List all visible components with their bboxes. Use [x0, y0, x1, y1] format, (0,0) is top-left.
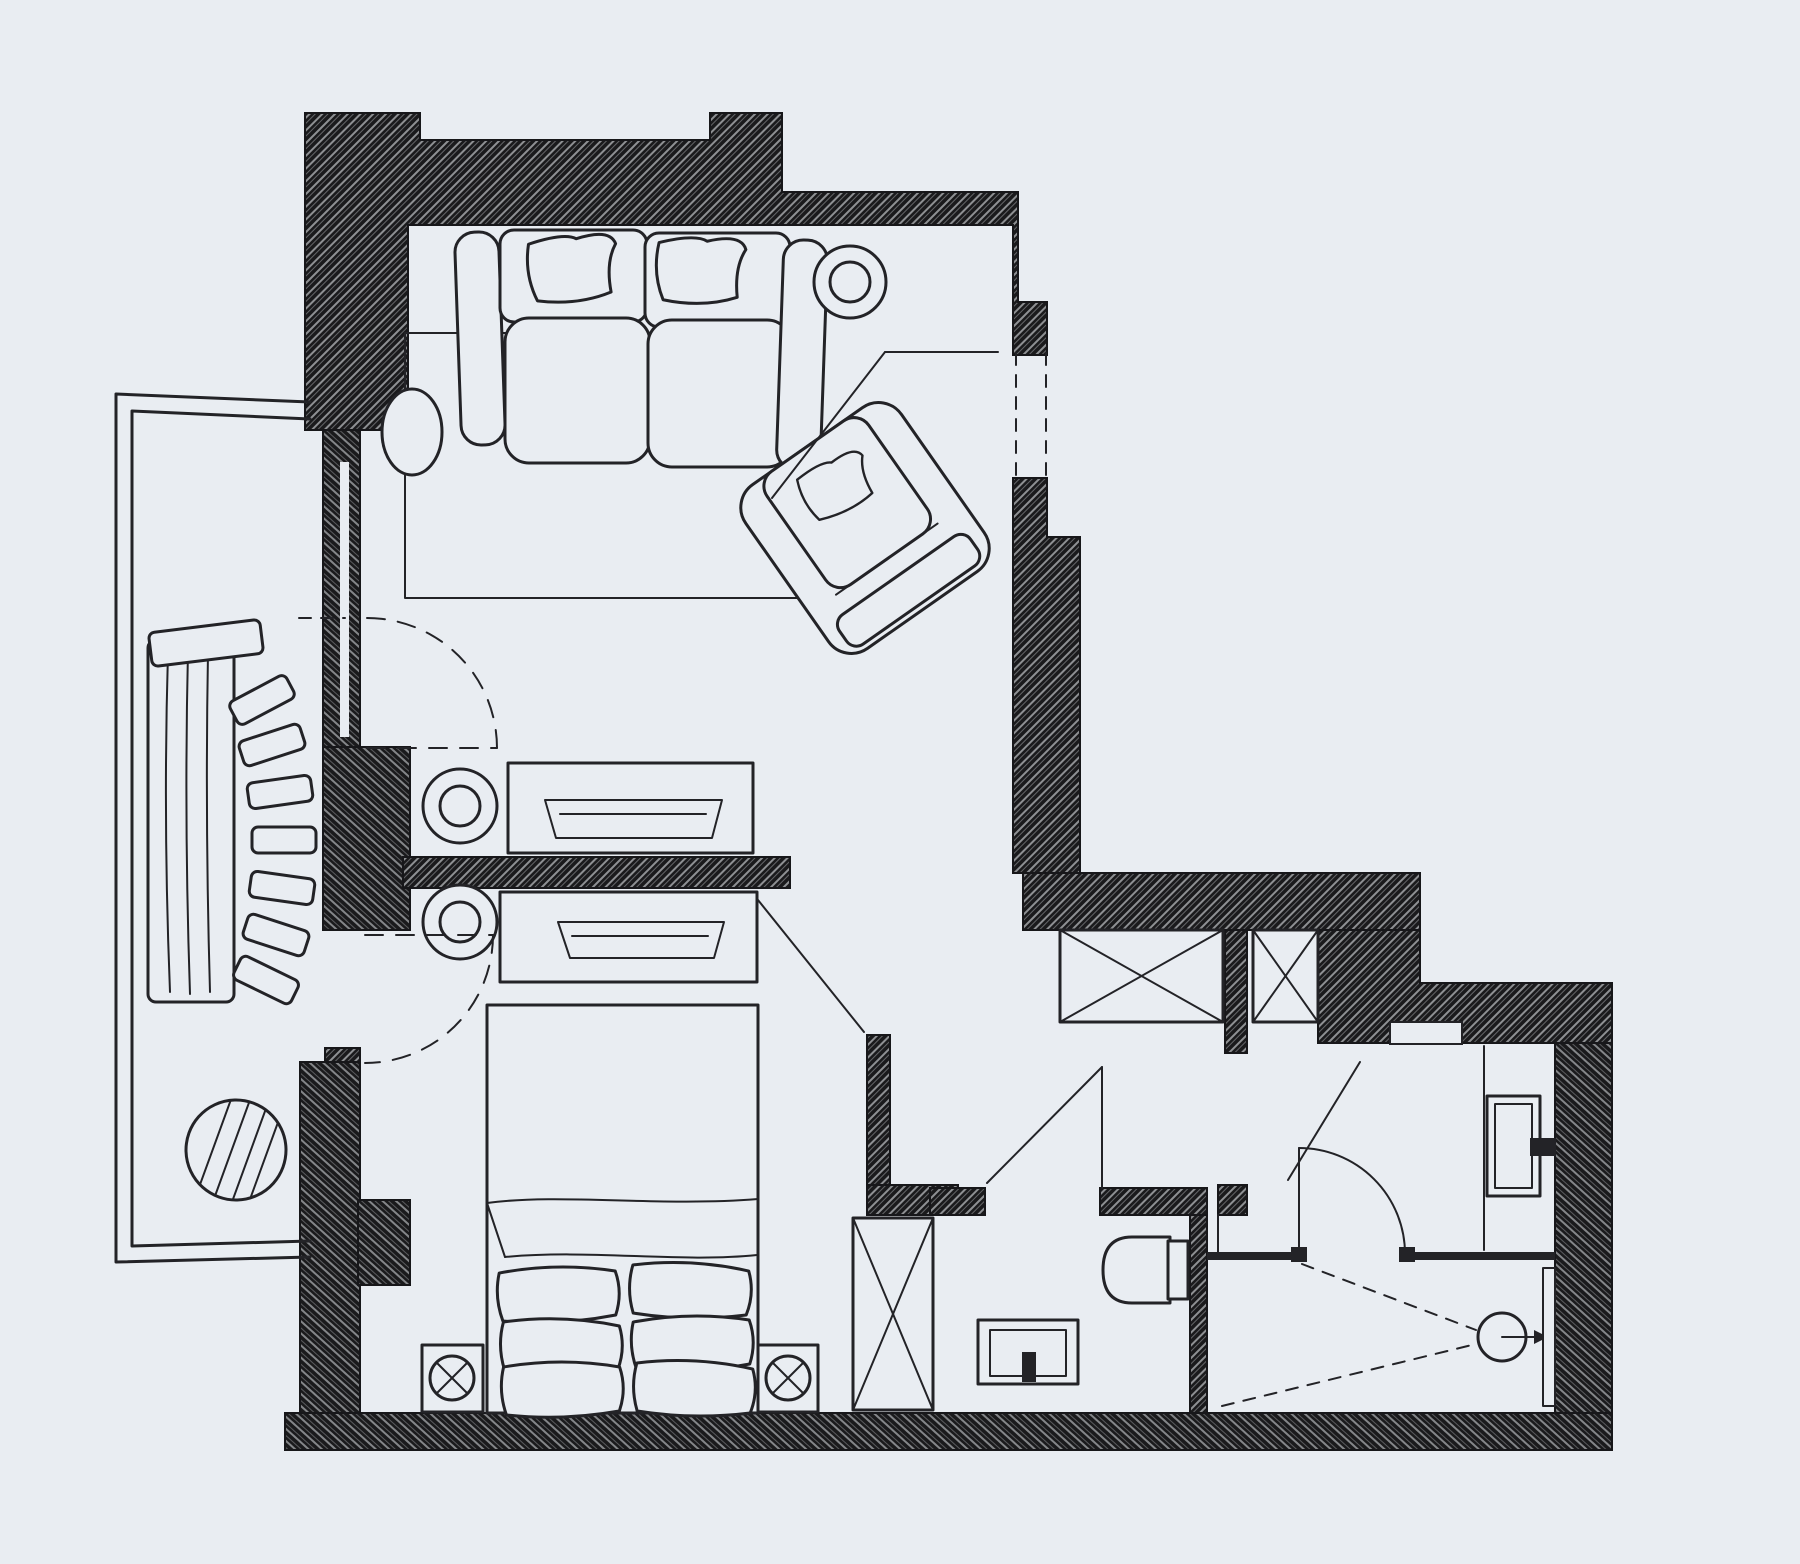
shower-glass-panel [1543, 1268, 1555, 1406]
sofa-left-arm [454, 231, 505, 445]
door-hinge-stub [1291, 1247, 1307, 1262]
wall-hall-stub [1218, 1185, 1247, 1215]
wall-bottom [285, 1413, 1612, 1450]
floor-plan-drawing [0, 0, 1800, 1564]
nightstand-right [758, 1345, 818, 1412]
wall-right [1555, 1043, 1612, 1450]
wall-left-lower [300, 1062, 360, 1448]
sofa-seat-cushion-left [505, 318, 650, 463]
wall-bath-east [1190, 1215, 1207, 1413]
toilet [1103, 1237, 1188, 1303]
sofa-seat-cushion-right [648, 320, 791, 467]
double-bed [487, 1005, 758, 1418]
bed-pillow [633, 1359, 757, 1418]
wall-east-living [1013, 478, 1080, 873]
wardrobe-x-box [853, 1218, 933, 1410]
wall-hall-pillar [1225, 930, 1247, 1053]
wall-bedroom-hall [867, 1035, 890, 1187]
wall-left-protrusion [358, 1200, 410, 1285]
round-stool-bedroom [423, 885, 497, 959]
wall-sink-with-tap [978, 1320, 1078, 1384]
wall-divider-living-bedroom [403, 857, 790, 888]
sofa-throw-pillow-left [526, 233, 618, 303]
round-stool-living [423, 769, 497, 843]
wall-bath-north-left [930, 1188, 985, 1215]
wall-left-door-block [323, 747, 410, 930]
floor-plan-page [0, 0, 1800, 1564]
lamp-symbol-right [766, 1356, 810, 1400]
round-side-table [814, 246, 886, 318]
media-console-bedroom [500, 892, 757, 982]
bed-pillow [496, 1265, 620, 1324]
nightstand-left [422, 1345, 483, 1412]
wall-hall-north [1023, 873, 1420, 930]
closet-x-wide [1060, 930, 1223, 1022]
oval-side-table [382, 389, 442, 475]
bed-pillow [629, 1261, 753, 1320]
media-console-living [508, 763, 753, 853]
bed-pillow [501, 1361, 624, 1418]
lamp-symbol-left [430, 1356, 474, 1400]
three-seat-sofa [454, 230, 828, 471]
sofa-throw-pillow-right [655, 236, 746, 305]
threshold-notch [1390, 1022, 1462, 1044]
window-glazing-strip [340, 462, 349, 737]
closet-x-narrow [1253, 930, 1318, 1022]
door-jamb-stub [325, 1048, 360, 1062]
wall-bath-north-right [1100, 1188, 1207, 1215]
